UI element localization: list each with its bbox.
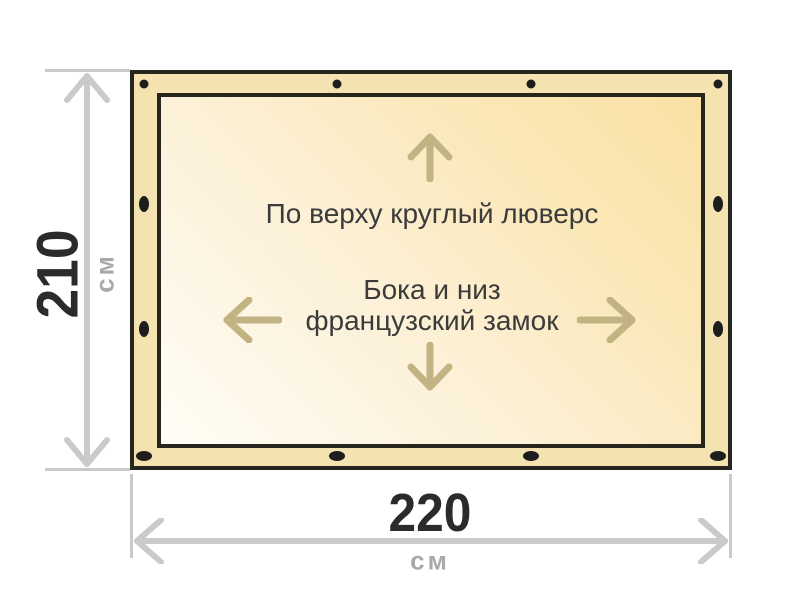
round-grommet-icon xyxy=(714,80,723,89)
oval-grommet-icon xyxy=(523,451,539,461)
top-annotation: По верху круглый люверс xyxy=(160,198,704,229)
down-direction-arrow-icon xyxy=(407,342,453,394)
oval-grommet-icon xyxy=(713,196,723,212)
round-grommet-icon xyxy=(333,80,342,89)
oval-grommet-icon xyxy=(710,451,726,461)
height-value: 210 xyxy=(25,229,92,318)
width-unit: см xyxy=(410,546,450,577)
oval-grommet-icon xyxy=(713,321,723,337)
round-grommet-icon xyxy=(140,80,149,89)
center-annotation-line2: французский замок xyxy=(160,305,704,336)
oval-grommet-icon xyxy=(329,451,345,461)
height-unit: см xyxy=(90,253,121,293)
oval-grommet-icon xyxy=(139,321,149,337)
diagram-canvas: По верху круглый люверс Бока и низ франц… xyxy=(0,0,800,600)
center-annotation: Бока и низ французский замок xyxy=(160,274,704,336)
oval-grommet-icon xyxy=(139,196,149,212)
width-value: 220 xyxy=(389,482,472,544)
round-grommet-icon xyxy=(527,80,536,89)
oval-grommet-icon xyxy=(136,451,152,461)
center-annotation-line1: Бока и низ xyxy=(160,274,704,305)
up-direction-arrow-icon xyxy=(407,130,453,182)
